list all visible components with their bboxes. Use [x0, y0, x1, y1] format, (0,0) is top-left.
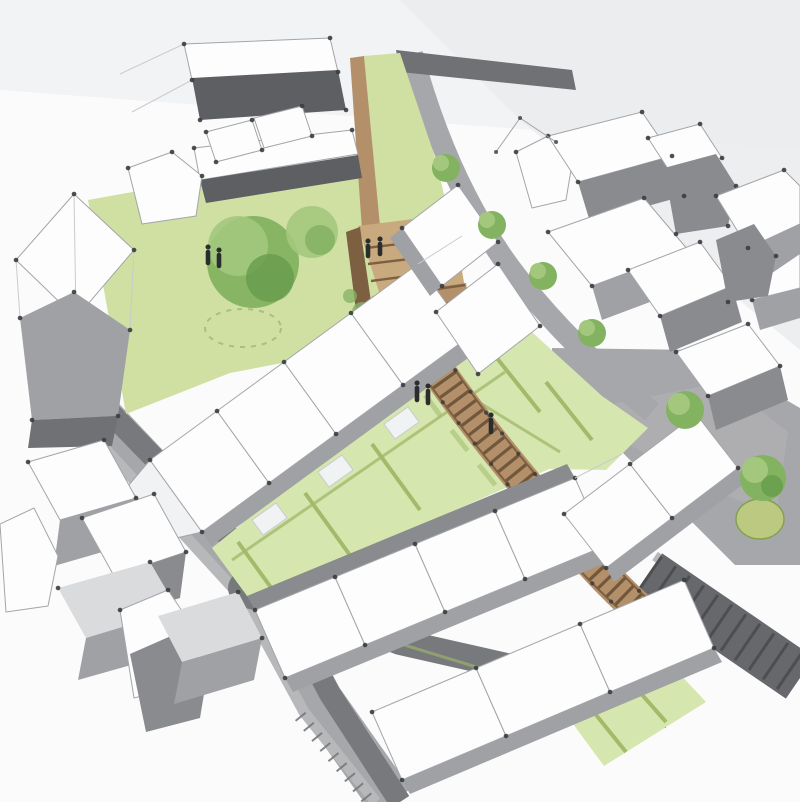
- canopy-shade: [246, 254, 294, 302]
- street-tree-highlight: [579, 320, 595, 336]
- plaza-oval-planter: [736, 499, 784, 539]
- site-plan-rendering: [0, 0, 800, 802]
- planting-tuft: [343, 289, 357, 303]
- street-tree-highlight: [530, 263, 546, 279]
- plaza-tree-shade: [761, 475, 783, 497]
- street-tree-highlight: [433, 155, 449, 171]
- canopy-shade: [305, 225, 335, 255]
- street-tree-highlight: [479, 212, 495, 228]
- architectural-rendering: [0, 0, 800, 802]
- plaza-tree-highlight: [668, 393, 690, 415]
- lawn-tree-small: [286, 206, 338, 258]
